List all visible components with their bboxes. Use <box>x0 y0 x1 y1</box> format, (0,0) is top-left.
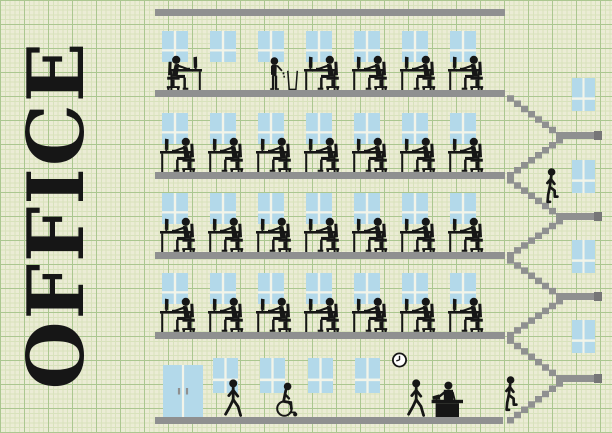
stair-flight <box>507 252 563 300</box>
ground-window-icon <box>308 358 333 393</box>
standing-person-trash-icon <box>270 57 297 90</box>
stairwell-window-icon <box>572 240 595 273</box>
window-icon <box>258 31 284 62</box>
floor-bar <box>155 252 505 259</box>
stairwell-window-icon <box>572 160 595 193</box>
stair-flight <box>507 213 563 259</box>
stair-flight <box>507 293 563 339</box>
stair-flight <box>507 375 563 424</box>
walking-person-icon <box>409 379 424 415</box>
building-cutaway <box>0 0 612 433</box>
stair-landing-anchor <box>594 292 602 301</box>
reception-desk-icon <box>432 382 463 417</box>
stair-landing-anchor <box>594 374 602 383</box>
stair-landing <box>561 132 594 139</box>
stair-landing-anchor <box>594 212 602 221</box>
stair-landing <box>561 375 594 382</box>
stair-flight <box>507 90 563 139</box>
ground-floor-bar <box>155 417 503 424</box>
floor-bar <box>155 172 505 179</box>
stair-landing <box>561 293 594 300</box>
roof-bar <box>155 9 505 16</box>
stair-climber-icon <box>506 376 516 410</box>
stair-flight <box>507 332 563 382</box>
floor-bar <box>155 90 505 97</box>
window-icon <box>210 31 236 62</box>
stair-climber-icon <box>547 168 557 202</box>
stairwell-window-icon <box>572 320 595 353</box>
entrance-door-icon <box>163 365 203 417</box>
stair-landing <box>561 213 594 220</box>
ground-window-icon <box>260 358 285 393</box>
stairwell-window-icon <box>572 78 595 111</box>
wall-clock-icon <box>393 353 406 366</box>
stair-landing-anchor <box>594 131 602 140</box>
ground-window-icon <box>355 358 380 393</box>
floor-bar <box>155 332 505 339</box>
office-illustration: OFFICE <box>0 0 612 433</box>
